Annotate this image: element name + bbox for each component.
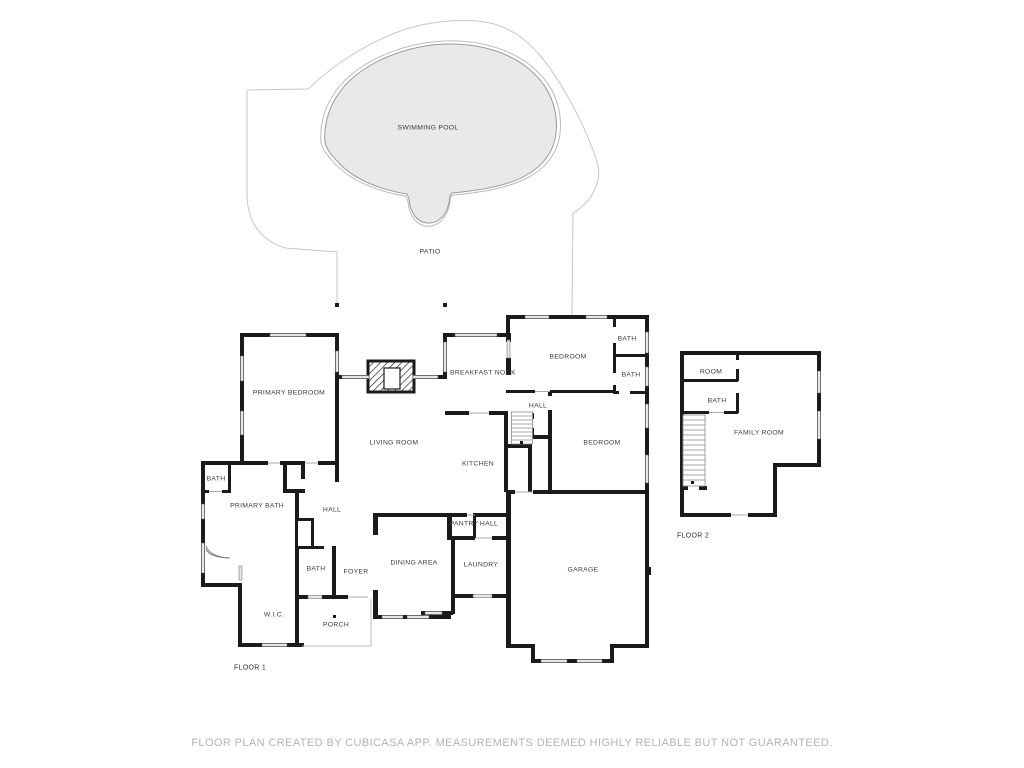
staircase-floor2 bbox=[683, 415, 705, 486]
room-label-bath-west: BATH bbox=[207, 476, 226, 483]
bathtub-arc bbox=[206, 546, 230, 558]
floor2-title: FLOOR 2 bbox=[677, 533, 709, 540]
room-label-garage: GARAGE bbox=[568, 567, 599, 574]
room-label-dining-area: DINING AREA bbox=[390, 560, 437, 567]
room-label-bedroom-north: BEDROOM bbox=[549, 354, 586, 361]
floor2-door-lines bbox=[709, 413, 748, 516]
room-label-f2-room: ROOM bbox=[700, 369, 722, 376]
floor-plan-page: SWIMMING POOL PATIO PRIMARY BEDROOM BREA… bbox=[0, 0, 1024, 768]
room-label-f2-bath: BATH bbox=[708, 398, 727, 405]
fireplace bbox=[368, 361, 414, 392]
room-label-bedroom-east: BEDROOM bbox=[583, 440, 620, 447]
swimming-pool-shape bbox=[321, 41, 561, 226]
staircase-floor1 bbox=[512, 412, 533, 444]
disclaimer-text: FLOOR PLAN CREATED BY CUBICASA APP. MEAS… bbox=[0, 737, 1024, 749]
room-label-living-room: LIVING ROOM bbox=[370, 440, 419, 447]
room-label-pantry: PANTRY bbox=[450, 521, 479, 528]
room-label-laundry: LAUNDRY bbox=[464, 562, 498, 569]
room-label-bath-ne1: BATH bbox=[618, 336, 637, 343]
patio-corner-dot bbox=[443, 303, 447, 307]
room-label-wic: W.I.C. bbox=[264, 612, 284, 619]
floor-plan-drawing bbox=[0, 0, 1024, 768]
bathtub-arc-inner bbox=[206, 549, 228, 558]
room-label-bath-center: BATH bbox=[307, 566, 326, 573]
room-label-primary-bath: PRIMARY BATH bbox=[230, 503, 284, 510]
room-label-bath-ne2: BATH bbox=[622, 372, 641, 379]
room-label-primary-bedroom: PRIMARY BEDROOM bbox=[253, 390, 325, 397]
room-label-swimming-pool: SWIMMING POOL bbox=[398, 125, 459, 132]
room-label-hall-south: HALL bbox=[480, 521, 498, 528]
room-label-hall-west: HALL bbox=[323, 507, 341, 514]
room-label-foyer: FOYER bbox=[344, 569, 369, 576]
porch-dot bbox=[333, 615, 336, 618]
room-label-breakfast-nook: BREAKFAST NOOK bbox=[450, 370, 516, 377]
floor1-door-lines bbox=[209, 392, 550, 598]
room-label-kitchen: KITCHEN bbox=[462, 461, 494, 468]
floor1-windows bbox=[202, 316, 649, 663]
patio-corner-dot bbox=[335, 303, 339, 307]
floor1-title: FLOOR 1 bbox=[234, 665, 266, 672]
room-label-hall-north: HALL bbox=[529, 403, 547, 410]
room-label-porch: PORCH bbox=[323, 622, 349, 629]
room-label-family-room: FAMILY ROOM bbox=[734, 430, 784, 437]
room-label-patio: PATIO bbox=[420, 249, 441, 256]
